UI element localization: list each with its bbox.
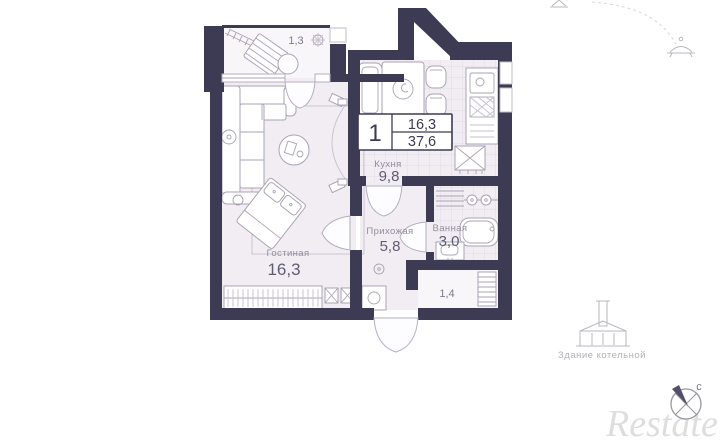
stove-icon <box>455 146 485 174</box>
bathroom-area: 3,0 <box>439 233 460 250</box>
kitchen-sofa <box>358 63 382 117</box>
balcony-plant-icon <box>311 33 325 47</box>
unit-info-box: 1 16,3 37,6 <box>358 114 452 150</box>
hallway-area: 5,8 <box>380 238 401 255</box>
coffee-table <box>279 135 309 165</box>
living-room-label: Гостиная <box>266 248 309 259</box>
boiler-building-label: Здание котельной <box>558 350 646 361</box>
floor-plan-page: 1,3 Гостиная 16,3 Кухня 9,8 Прихожая 5,8… <box>0 0 725 444</box>
hallway-label: Прихожая <box>366 226 413 237</box>
site-path-dashed <box>592 2 676 44</box>
entrance-door <box>374 318 418 352</box>
unit-rooms-count: 1 <box>368 120 381 147</box>
compass-north-label: с <box>696 381 702 393</box>
loggia-area: 1,4 <box>439 288 454 300</box>
balcony-table <box>278 54 298 74</box>
site-lamp-icon <box>667 37 695 57</box>
living-room-area: 16,3 <box>267 260 300 279</box>
boiler-building-icon <box>576 301 630 346</box>
kitchen-table <box>382 62 424 116</box>
loggia-ladder <box>478 272 496 306</box>
site-lamp-icon-top <box>550 0 568 7</box>
kitchen-counter <box>466 68 498 144</box>
watermark-logo: Restate <box>605 403 718 444</box>
floor-plan: 1,3 Гостиная 16,3 Кухня 9,8 Прихожая 5,8… <box>0 0 725 444</box>
balcony-top-area: 1,3 <box>288 35 303 47</box>
unit-living-area: 16,3 <box>408 117 436 133</box>
wardrobe <box>224 286 322 310</box>
unit-total-area: 37,6 <box>408 134 436 150</box>
kitchen-area: 9,8 <box>379 168 400 185</box>
